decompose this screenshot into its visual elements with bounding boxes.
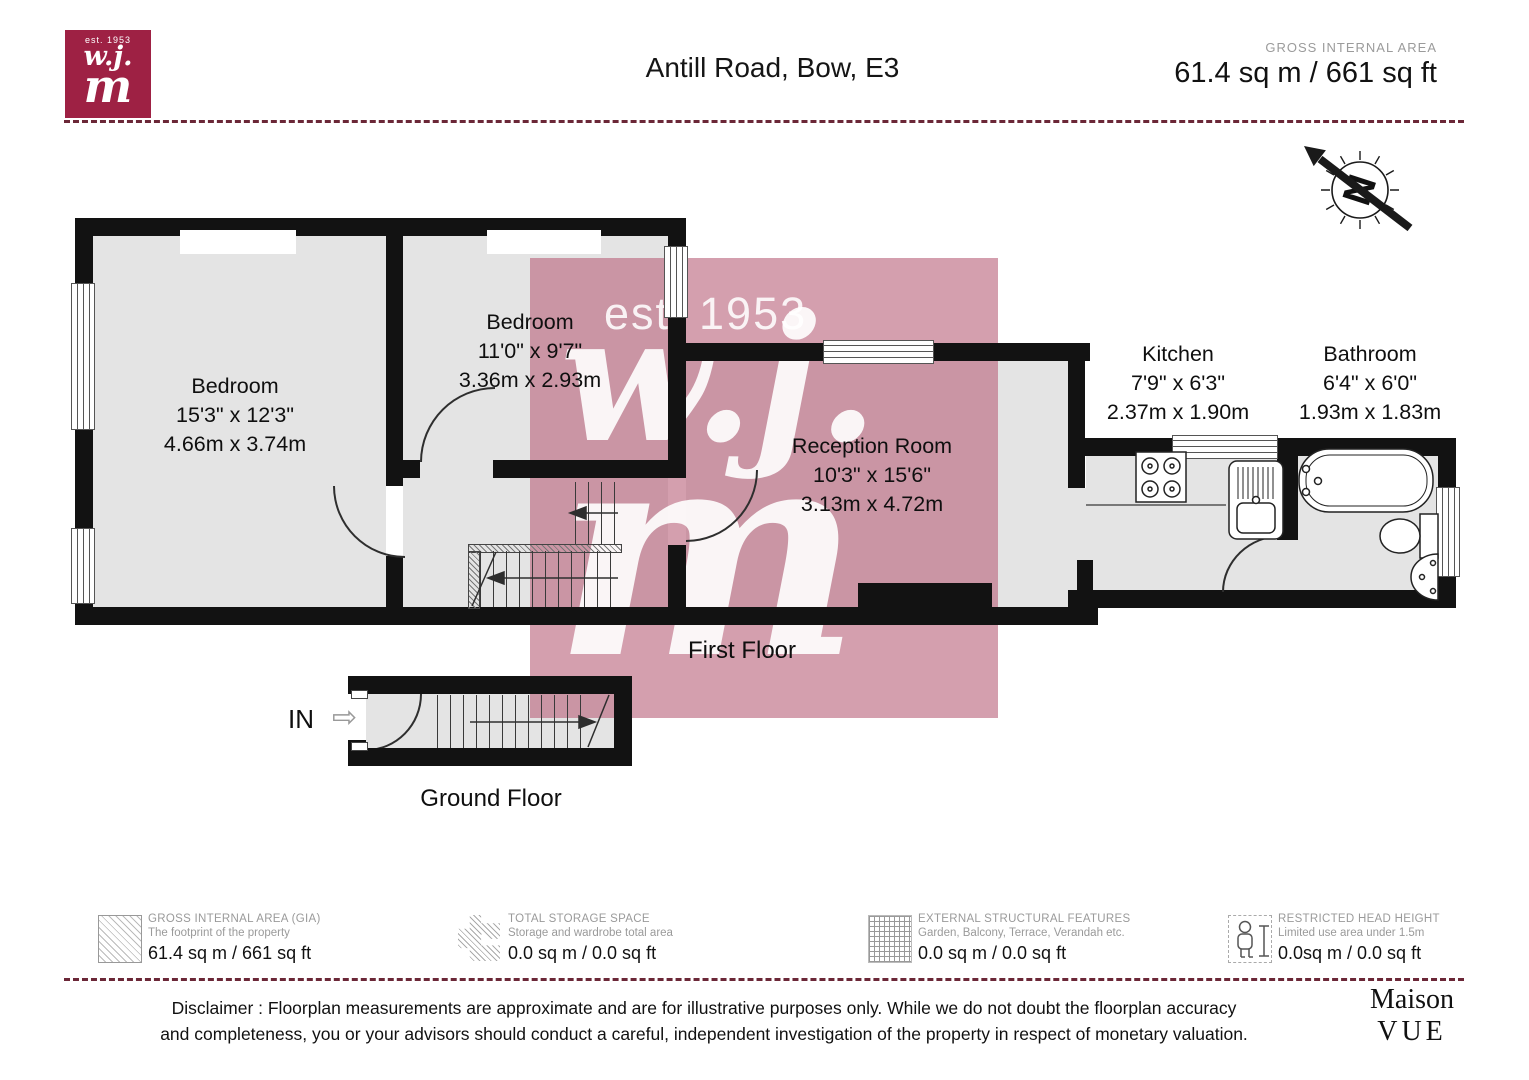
room-size-imperial: 10'3" x 15'6": [742, 461, 1002, 490]
wall: [493, 460, 686, 478]
diagonal-hatch-icon: [98, 915, 142, 963]
wall: [668, 545, 686, 607]
stair-hatch: [468, 551, 480, 609]
wall: [1277, 456, 1298, 540]
chimney-alcove: [487, 230, 601, 254]
wall: [1276, 438, 1456, 456]
footer-divider: [64, 978, 1464, 981]
wall: [1438, 575, 1456, 608]
wall: [1068, 590, 1456, 608]
legend-title: TOTAL STORAGE SPACE: [508, 913, 808, 925]
storage-hatch-icon: [458, 915, 500, 961]
legend-title: RESTRICTED HEAD HEIGHT: [1278, 913, 1529, 925]
room-label-bedroom-2: Bedroom 11'0" x 9'7" 3.36m x 2.93m: [400, 308, 660, 396]
svg-text:N: N: [1335, 169, 1386, 210]
window: [1436, 487, 1460, 577]
agency-logo: est. 1953 w.j. m: [65, 30, 151, 118]
window: [71, 528, 95, 604]
room-size-metric: 3.36m x 2.93m: [400, 366, 660, 395]
entrance-arrow-icon: ⇨: [332, 700, 357, 735]
legend-item-external: EXTERNAL STRUCTURAL FEATURES Garden, Bal…: [868, 913, 1218, 973]
chimney-alcove: [180, 230, 296, 254]
disclaimer-line-2: and completeness, you or your advisors s…: [64, 1021, 1344, 1047]
window: [71, 283, 95, 430]
room-name: Bedroom: [400, 308, 660, 337]
grid-hatch-icon: [868, 915, 912, 963]
logo-m-text: m: [65, 69, 151, 105]
floorplan-page: est. 1953 w.j. m Antill Road, Bow, E3 GR…: [0, 0, 1529, 1080]
wall: [348, 676, 632, 694]
legend-value: 0.0 sq m / 0.0 sq ft: [918, 943, 1218, 964]
room-label-bathroom: Bathroom 6'4" x 6'0" 1.93m x 1.83m: [1240, 340, 1500, 428]
disclaimer-line-1: Disclaimer : Floorplan measurements are …: [64, 995, 1344, 1021]
legend-value: 0.0 sq m / 0.0 sq ft: [508, 943, 808, 964]
door-jamb: [351, 690, 368, 699]
legend-value: 0.0sq m / 0.0 sq ft: [1278, 943, 1529, 964]
wall: [668, 343, 823, 361]
legend-item-gia: GROSS INTERNAL AREA (GIA) The footprint …: [98, 913, 448, 973]
room-name: Bedroom: [105, 372, 365, 401]
wall: [348, 748, 632, 766]
staircase: [575, 482, 621, 544]
gia-value: 61.4 sq m / 661 sq ft: [1174, 57, 1437, 90]
window: [823, 340, 934, 364]
wall: [668, 316, 686, 343]
wall: [1068, 438, 1172, 456]
legend-value: 61.4 sq m / 661 sq ft: [148, 943, 448, 964]
staircase: [437, 695, 592, 748]
room-size-metric: 4.66m x 3.74m: [105, 430, 365, 459]
ground-floor-label: Ground Floor: [381, 785, 601, 813]
room-label-reception: Reception Room 10'3" x 15'6" 3.13m x 4.7…: [742, 432, 1002, 520]
wall: [75, 607, 1098, 625]
wall: [386, 556, 403, 607]
wall: [614, 676, 632, 766]
page-title: Antill Road, Bow, E3: [465, 52, 1080, 84]
legend-subtitle: Garden, Balcony, Terrace, Verandah etc.: [918, 927, 1218, 939]
staircase: [480, 551, 620, 607]
room-name: Reception Room: [742, 432, 1002, 461]
legend-subtitle: The footprint of the property: [148, 927, 448, 939]
room-size-imperial: 6'4" x 6'0": [1240, 369, 1500, 398]
legend-subtitle: Limited use area under 1.5m: [1278, 927, 1529, 939]
wall: [1438, 438, 1456, 487]
wall: [403, 460, 420, 478]
legend-title: EXTERNAL STRUCTURAL FEATURES: [918, 913, 1218, 925]
room-name: Bathroom: [1240, 340, 1500, 369]
wall: [1077, 560, 1093, 607]
entrance-label: IN: [288, 704, 314, 735]
room-size-metric: 1.93m x 1.83m: [1240, 398, 1500, 427]
brand-line-2: VUE: [1352, 1016, 1472, 1048]
window: [1172, 435, 1278, 459]
compass-north-icon: N: [1304, 146, 1410, 229]
room-size-metric: 3.13m x 4.72m: [742, 490, 1002, 519]
floor-area: [420, 460, 493, 478]
maison-vue-logo: Maison VUE: [1352, 984, 1472, 1048]
gross-internal-area: GROSS INTERNAL AREA 61.4 sq m / 661 sq f…: [1174, 40, 1437, 90]
door-jamb: [351, 742, 368, 751]
legend-subtitle: Storage and wardrobe total area: [508, 927, 808, 939]
room-size-imperial: 11'0" x 9'7": [400, 337, 660, 366]
wall: [858, 583, 992, 607]
window: [664, 246, 688, 318]
legend-item-storage: TOTAL STORAGE SPACE Storage and wardrobe…: [458, 913, 808, 973]
header-divider: [64, 120, 1464, 123]
gia-label: GROSS INTERNAL AREA: [1174, 40, 1437, 55]
disclaimer-text: Disclaimer : Floorplan measurements are …: [64, 995, 1344, 1048]
room-size-imperial: 15'3" x 12'3": [105, 401, 365, 430]
legend-item-head-height: RESTRICTED HEAD HEIGHT Limited use area …: [1228, 913, 1508, 973]
legend-title: GROSS INTERNAL AREA (GIA): [148, 913, 448, 925]
room-label-bedroom-1: Bedroom 15'3" x 12'3" 4.66m x 3.74m: [105, 372, 365, 460]
person-height-box: [1228, 915, 1272, 963]
first-floor-label: First Floor: [632, 637, 852, 665]
brand-line-1: Maison: [1352, 984, 1472, 1016]
wall: [668, 218, 686, 246]
wall: [668, 361, 686, 470]
